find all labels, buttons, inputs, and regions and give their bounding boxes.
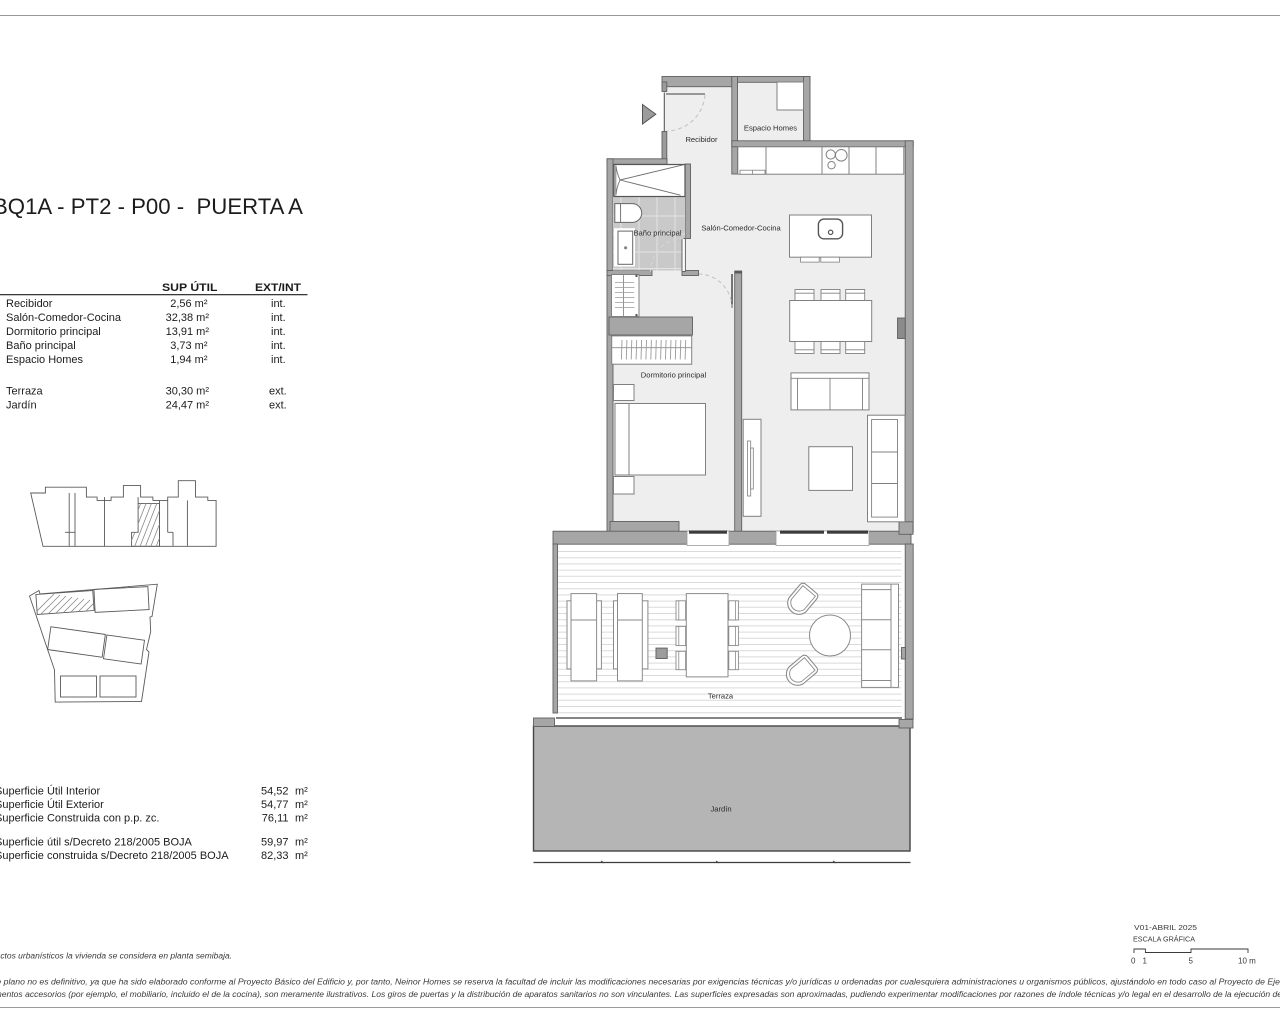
svg-text:m²: m² bbox=[295, 786, 308, 798]
svg-text:int.: int. bbox=[271, 312, 286, 324]
svg-text:Superficie útil s/Decreto 218/: Superficie útil s/Decreto 218/2005 BOJA bbox=[0, 837, 193, 849]
svg-text:ESCALA GRÁFICA: ESCALA GRÁFICA bbox=[1133, 935, 1195, 944]
svg-text:Dormitorio principal: Dormitorio principal bbox=[6, 326, 101, 338]
svg-text:32,38 m²: 32,38 m² bbox=[166, 312, 210, 324]
svg-text:Jardín: Jardín bbox=[710, 805, 731, 814]
svg-text:13,91 m²: 13,91 m² bbox=[166, 326, 210, 338]
svg-text:m²: m² bbox=[295, 850, 308, 862]
svg-text:Jardín: Jardín bbox=[6, 399, 37, 411]
svg-text:59,97: 59,97 bbox=[261, 837, 289, 849]
svg-text:BQ1A - PT2 - P00 - PUERTA A: BQ1A - PT2 - P00 - PUERTA A bbox=[0, 194, 303, 219]
svg-text:sente plano no es definitivo,: sente plano no es definitivo, ya que ha … bbox=[0, 978, 1280, 987]
svg-text:Superficie Útil Interior: Superficie Útil Interior bbox=[0, 785, 100, 798]
svg-text:aspectos urbanísticos la vivie: aspectos urbanísticos la vivienda se con… bbox=[0, 952, 232, 961]
svg-text:Recibidor: Recibidor bbox=[685, 135, 718, 144]
svg-text:10 m: 10 m bbox=[1238, 957, 1256, 966]
svg-text:SUP ÚTIL: SUP ÚTIL bbox=[162, 281, 218, 294]
svg-text:54,52: 54,52 bbox=[261, 786, 289, 798]
svg-text:ext.: ext. bbox=[269, 399, 287, 411]
svg-text:3,73 m²: 3,73 m² bbox=[170, 340, 208, 352]
svg-text:m²: m² bbox=[295, 837, 308, 849]
svg-text:54,77: 54,77 bbox=[261, 799, 289, 811]
svg-text:m²: m² bbox=[295, 813, 308, 825]
svg-text:Recibidor: Recibidor bbox=[6, 298, 53, 310]
svg-text:Espacio Homes: Espacio Homes bbox=[744, 124, 797, 133]
svg-text:EXT/INT: EXT/INT bbox=[255, 282, 301, 294]
svg-text:lementos accesorios (por ejemp: lementos accesorios (por ejemplo, el mob… bbox=[0, 990, 1280, 999]
svg-text:int.: int. bbox=[271, 298, 286, 310]
svg-text:Superficie Construida con p.p.: Superficie Construida con p.p. zc. bbox=[0, 813, 159, 825]
svg-text:30,30 m²: 30,30 m² bbox=[166, 385, 210, 397]
svg-text:Terraza: Terraza bbox=[708, 692, 734, 701]
svg-text:Superficie construida s/Decret: Superficie construida s/Decreto 218/2005… bbox=[0, 850, 229, 862]
svg-text:76,11: 76,11 bbox=[262, 813, 289, 825]
svg-text:Superficie Útil Exterior: Superficie Útil Exterior bbox=[0, 798, 104, 811]
svg-text:Salón-Comedor-Cocina: Salón-Comedor-Cocina bbox=[6, 312, 122, 324]
svg-text:0: 0 bbox=[1131, 957, 1136, 966]
svg-text:Terraza: Terraza bbox=[6, 385, 44, 397]
svg-text:int.: int. bbox=[271, 354, 286, 366]
svg-text:2,56 m²: 2,56 m² bbox=[170, 298, 208, 310]
svg-text:Dormitorio principal: Dormitorio principal bbox=[641, 371, 707, 380]
svg-text:5: 5 bbox=[1189, 957, 1194, 966]
svg-text:Salón-Comedor-Cocina: Salón-Comedor-Cocina bbox=[701, 224, 781, 233]
svg-text:m²: m² bbox=[295, 799, 308, 811]
svg-text:int.: int. bbox=[271, 326, 286, 338]
svg-text:Baño principal: Baño principal bbox=[6, 340, 76, 352]
svg-text:ext.: ext. bbox=[269, 385, 287, 397]
svg-text:Baño principal: Baño principal bbox=[633, 229, 681, 238]
svg-text:V01-ABRIL 2025: V01-ABRIL 2025 bbox=[1134, 923, 1197, 932]
svg-text:int.: int. bbox=[271, 340, 286, 352]
svg-text:24,47 m²: 24,47 m² bbox=[166, 399, 210, 411]
svg-text:82,33: 82,33 bbox=[261, 850, 289, 862]
svg-text:1,94 m²: 1,94 m² bbox=[170, 354, 208, 366]
svg-text:1: 1 bbox=[1143, 957, 1148, 966]
svg-text:Espacio Homes: Espacio Homes bbox=[6, 354, 84, 366]
